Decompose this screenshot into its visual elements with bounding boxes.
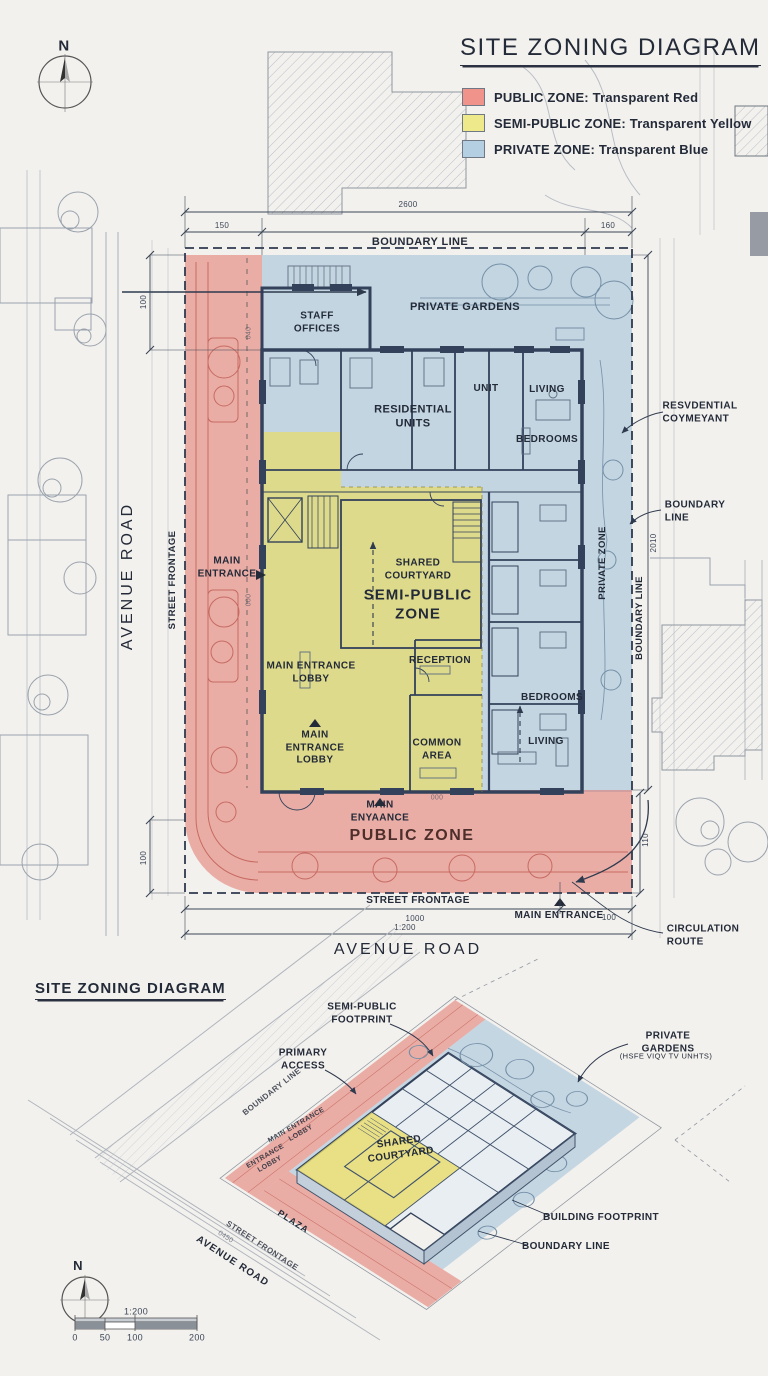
- boundary-line-top-label: BOUNDARY LINE: [372, 236, 468, 250]
- room-label-reception: RECEPTION: [409, 655, 471, 668]
- main-entrance-lobby-red-label: MAIN ENTRANCE LOBBY: [286, 729, 345, 767]
- avenue-road-left-label: AVENUE ROAD: [118, 502, 138, 650]
- room-label-staff-offices: STAFF OFFICES: [294, 311, 340, 336]
- dim-top-right: 160: [601, 221, 615, 231]
- boundary-line-right-label: BOUNDARY LINE: [665, 500, 726, 525]
- site-plan-drawing: [0, 0, 768, 1376]
- dim-right-lower: 110: [641, 833, 651, 847]
- boundary-line-vertical-label: BOUNDARY LINE: [634, 576, 646, 660]
- page-title: SITE ZONING DIAGRAM: [460, 34, 761, 66]
- north-arrow-icon: [37, 54, 93, 112]
- axon-primary-access-label: PRIMARY ACCESS: [279, 1048, 328, 1073]
- private-zone-swatch-icon: [462, 140, 485, 158]
- dim-top-left: 150: [215, 221, 229, 231]
- zone-label-semi-public: SEMI-PUBLIC ZONE: [364, 586, 473, 624]
- scale-tick-50: 50: [100, 1332, 111, 1343]
- room-label-living-lower: LIVING: [528, 736, 564, 749]
- dim-bottom-scale: 1:200: [394, 923, 416, 933]
- dim-bottom-right: 100: [602, 913, 616, 923]
- legend-item-private: PRIVATE ZONE: Transparent Blue: [462, 140, 752, 158]
- scale-tick-200: 200: [189, 1332, 205, 1343]
- axon-boundary-line-label: BOUNDARY LINE: [522, 1241, 610, 1254]
- dim-small-c: 000: [431, 795, 444, 804]
- main-entrance-mid-label: MAIN ENYAANCE: [351, 800, 409, 825]
- circulation-route-label: CIRCULATION ROUTE: [667, 924, 740, 949]
- scale-tick-100: 100: [127, 1332, 143, 1343]
- zone-label-public: PUBLIC ZONE: [350, 826, 475, 846]
- street-frontage-left-label: STREET FRONTAGE: [167, 531, 179, 630]
- site-zoning-diagram-page: SITE ZONING DIAGRAM PUBLIC ZONE: Transpa…: [0, 0, 768, 1376]
- room-label-residential-units: RESIDENTIAL UNITS: [374, 403, 452, 431]
- main-entrance-bottom-label: MAIN ENTRANCE: [514, 910, 603, 923]
- scale-tick-0: 0: [72, 1332, 77, 1343]
- room-label-bedrooms-upper: BEDROOMS: [516, 434, 578, 447]
- room-label-bedrooms-lower: BEDROOMS: [521, 692, 583, 705]
- private-zone-vertical-label: PRIVATE ZONE: [597, 526, 609, 600]
- residential-covenant-label: RESVDENTIAL COYMEYANT: [663, 401, 738, 426]
- legend: PUBLIC ZONE: Transparent Red SEMI-PUBLIC…: [462, 88, 752, 166]
- avenue-road-bottom-label: AVENUE ROAD: [334, 940, 482, 960]
- dim-small-a: 040: [246, 327, 255, 340]
- legend-item-semi-public: SEMI-PUBLIC ZONE: Transparent Yellow: [462, 114, 752, 132]
- axon-north-arrow-icon: [60, 1275, 110, 1325]
- street-frontage-bottom-label: STREET FRONTAGE: [366, 895, 470, 908]
- dim-small-b: 000: [246, 594, 255, 607]
- area-label-private-gardens: PRIVATE GARDENS: [410, 301, 520, 315]
- scale-ratio-label: 1:200: [124, 1306, 148, 1317]
- main-entrance-left-label: MAIN ENTRANCE: [198, 556, 257, 581]
- room-label-unit: UNIT: [474, 383, 499, 396]
- room-label-common-area: COMMON AREA: [412, 738, 461, 763]
- dim-left-lower: 100: [139, 851, 149, 865]
- room-label-main-entrance-lobby: MAIN ENTRANCE LOBBY: [266, 661, 355, 686]
- semi-public-zone-swatch-icon: [462, 114, 485, 132]
- room-label-living-upper: LIVING: [529, 384, 565, 397]
- public-zone-swatch-icon: [462, 88, 485, 106]
- dim-left-upper: 100: [139, 295, 149, 309]
- legend-item-public: PUBLIC ZONE: Transparent Red: [462, 88, 752, 106]
- dim-right-upper: 2010: [649, 534, 659, 553]
- axon-north-label: N: [73, 1258, 83, 1274]
- axon-title: SITE ZONING DIAGRAM: [35, 980, 226, 1000]
- axon-building-footprint-label: BUILDING FOOTPRINT: [543, 1212, 659, 1225]
- area-label-shared-courtyard: SHARED COURTYARD: [385, 558, 452, 583]
- axon-private-gardens-sub-label: (HSFE VIQV TV UNHTS): [620, 1051, 712, 1060]
- axon-semi-public-footprint-label: SEMI-PUBLIC FOOTPRINT: [327, 1002, 396, 1027]
- north-label: N: [58, 38, 69, 57]
- dim-top-total: 2600: [399, 200, 418, 210]
